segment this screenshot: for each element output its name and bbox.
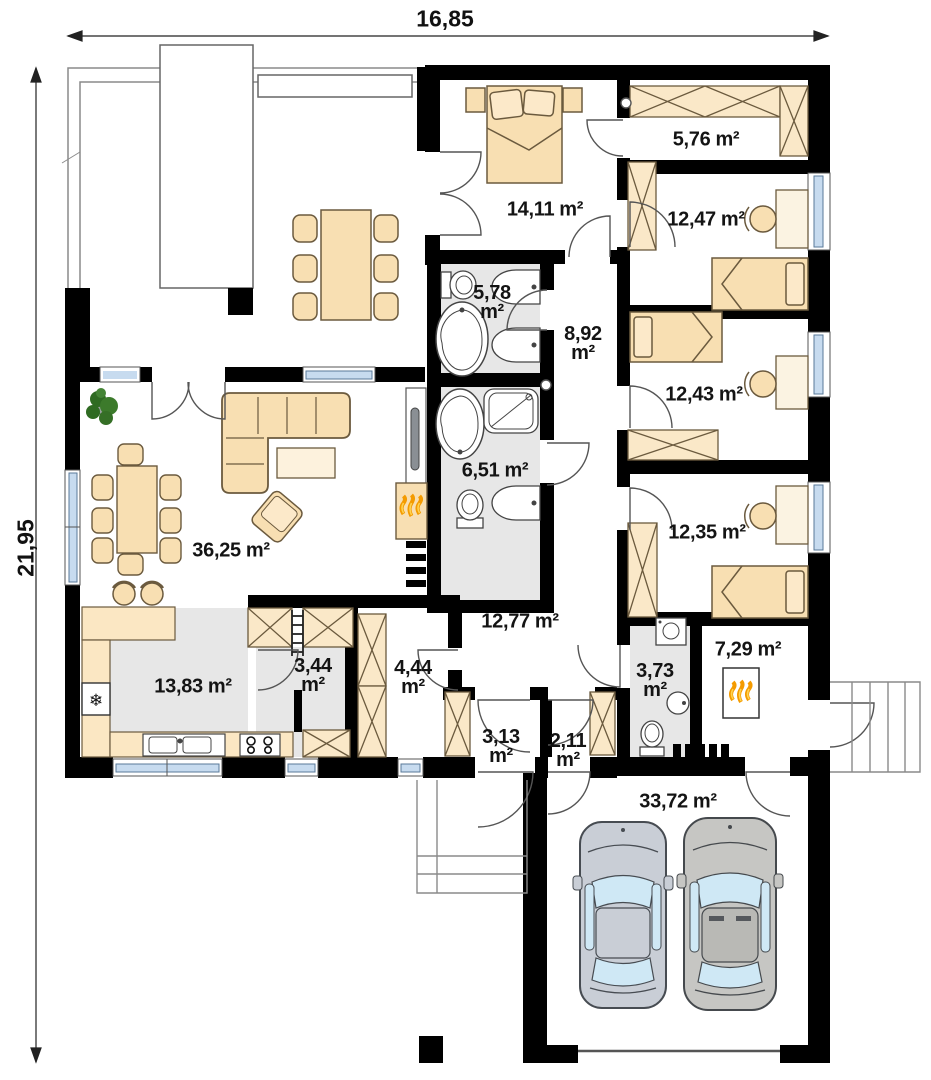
- area-label-bedroom-top: 12,47m²: [667, 209, 744, 232]
- window: [808, 482, 830, 553]
- area-label-hallway: 12,77m²: [481, 611, 558, 634]
- area-label-bathroom-main: 6,51m²: [462, 460, 529, 483]
- side-stairs: [830, 682, 920, 772]
- area-label-hall-bedrooms: 8,92m²: [564, 325, 602, 363]
- bathtub-icon: [436, 389, 484, 459]
- window: [808, 332, 830, 397]
- plant-icon: [86, 388, 118, 425]
- desks: [776, 190, 808, 544]
- fireplace-icon: [396, 483, 427, 539]
- toilet-icon: [640, 721, 664, 756]
- area-label-closet: 4,44m²: [394, 659, 432, 697]
- area-label-pantry: 3,44m²: [294, 657, 332, 695]
- bar-stools: [113, 582, 163, 605]
- car-icon: [677, 818, 783, 1010]
- bed-single-middle: [630, 312, 722, 362]
- armchair: [250, 489, 305, 544]
- desk-chairs: [745, 206, 776, 529]
- area-label-master-bedroom: 14,11m²: [507, 199, 583, 222]
- radiator-icon: [406, 541, 426, 587]
- stove-icon: [240, 734, 280, 756]
- furnace-icon: [723, 668, 759, 718]
- fridge-icon: ❄: [82, 683, 110, 715]
- window: [113, 759, 222, 776]
- window: [398, 759, 423, 776]
- area-label-bathroom-small: 5,78m²: [473, 284, 511, 322]
- kitchen-sink-icon: [143, 734, 225, 756]
- terrace-table-set: [293, 210, 398, 320]
- car-icon: [573, 822, 673, 1008]
- area-label-utility-wc: 3,73m²: [636, 662, 674, 700]
- coffee-table: [277, 448, 335, 478]
- toilet-icon: [441, 271, 476, 299]
- floor-plan-drawing: ❄: [0, 0, 931, 1080]
- floor-plan: ❄: [0, 0, 931, 1080]
- chimney: [160, 45, 412, 288]
- area-label-bedroom-bottom: 12,35m²: [668, 522, 745, 545]
- fridge-glyph: ❄: [89, 691, 103, 710]
- area-label-bedroom-middle: 12,43m²: [665, 384, 742, 407]
- window: [65, 470, 80, 585]
- dimension-depth-label: 21,95: [13, 519, 40, 577]
- area-label-garage: 33,72m²: [639, 791, 716, 814]
- washing-machine-icon: [656, 618, 686, 645]
- window: [285, 759, 318, 776]
- window: [808, 173, 830, 250]
- washbasin-icon: [492, 328, 540, 362]
- area-label-wardrobe: 5,76m²: [673, 129, 740, 152]
- washbasin-icon: [492, 486, 540, 520]
- shower-icon: [484, 389, 538, 433]
- dining-table-set: [92, 444, 181, 575]
- entrance-stairs: [417, 780, 527, 893]
- area-label-kitchen: 13,83m²: [154, 676, 231, 699]
- bed-single-top: [712, 258, 808, 310]
- bed-single-bottom: [712, 566, 808, 618]
- window: [303, 367, 375, 382]
- area-label-entry: 2,11m²: [550, 732, 587, 770]
- area-label-boiler-room: 7,29m²: [715, 639, 782, 662]
- toilet-icon: [457, 490, 483, 528]
- tv-panel: [406, 388, 426, 485]
- area-label-vestibule: 3,13m²: [482, 728, 520, 766]
- area-label-living-room: 36,25m²: [192, 540, 269, 563]
- master-bed: [466, 86, 582, 183]
- window: [100, 367, 140, 382]
- dimension-width-label: 16,85: [416, 6, 474, 33]
